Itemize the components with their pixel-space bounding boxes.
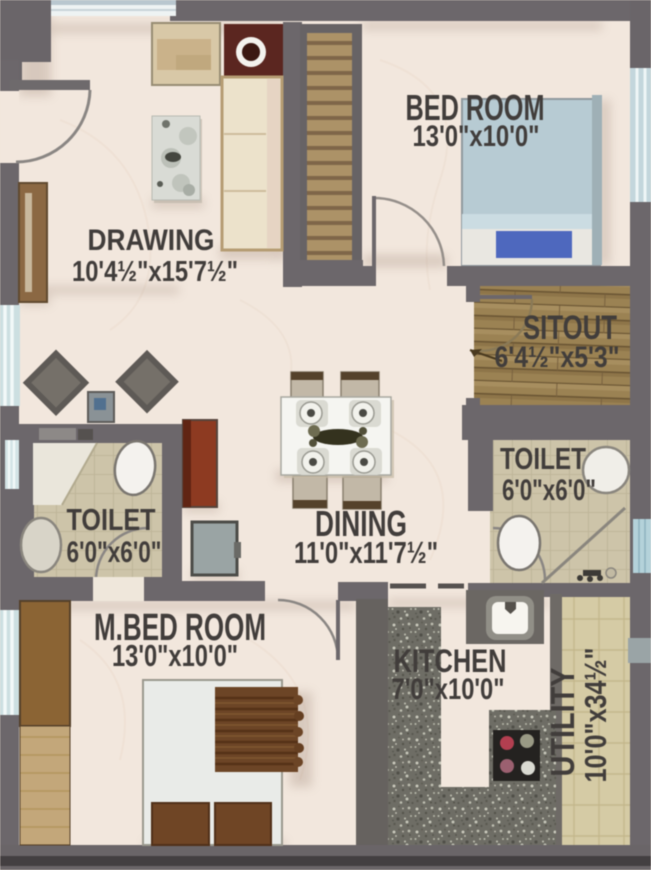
svg-text:11'0"x11'7½": 11'0"x11'7½" bbox=[294, 535, 438, 570]
svg-text:7'0"x10'0": 7'0"x10'0" bbox=[392, 673, 505, 706]
svg-text:10'0"x34½": 10'0"x34½" bbox=[578, 648, 613, 783]
svg-text:UTILITY: UTILITY bbox=[544, 668, 581, 777]
svg-text:DRAWING: DRAWING bbox=[88, 224, 215, 257]
svg-text:TOILET: TOILET bbox=[500, 441, 586, 476]
svg-text:6'0"x6'0": 6'0"x6'0" bbox=[67, 536, 162, 569]
svg-text:10'4½"x15'7½": 10'4½"x15'7½" bbox=[72, 256, 238, 288]
svg-text:6'0"x6'0": 6'0"x6'0" bbox=[502, 474, 596, 507]
svg-text:13'0"x10'0": 13'0"x10'0" bbox=[413, 120, 540, 153]
svg-text:6'4½"x5'3": 6'4½"x5'3" bbox=[495, 341, 620, 374]
svg-text:TOILET: TOILET bbox=[67, 502, 156, 537]
svg-text:13'0"x10'0": 13'0"x10'0" bbox=[112, 638, 238, 673]
